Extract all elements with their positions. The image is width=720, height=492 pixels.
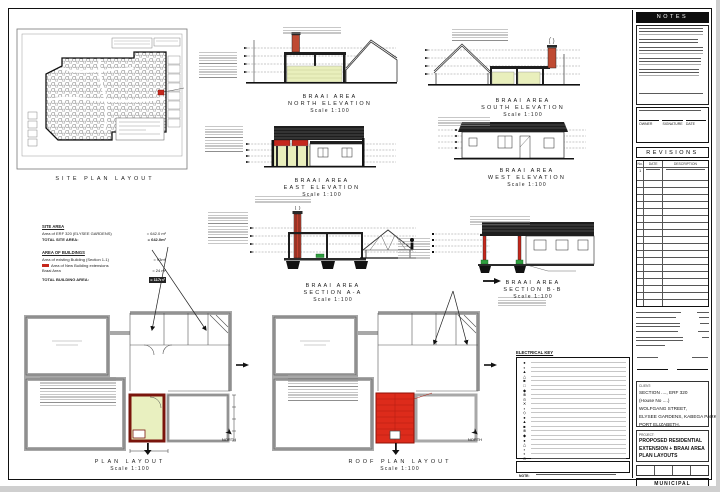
section-arrow [144, 450, 152, 455]
municipal-approval: MUNICIPAL APPROVAL [636, 478, 709, 487]
signature-box: OWNER SIGNATURE DATE [636, 107, 709, 143]
revision-row-empty [637, 187, 708, 194]
revisions-empty-rows [637, 174, 708, 306]
address-line: PORT ELIZABETH. [639, 421, 706, 429]
address-line: WOLFGANG STREET, [639, 405, 706, 413]
electrical-item-text [531, 371, 626, 373]
project-label: PROJECT: [639, 433, 706, 437]
electrical-item-text [531, 444, 626, 446]
revision-row-empty [637, 299, 708, 306]
revision-row-empty [637, 264, 708, 271]
chimney [292, 35, 300, 52]
electrical-item-text [531, 417, 626, 419]
roof-plan-caption: ROOF PLAN LAYOUT Scale 1:100 [320, 459, 480, 473]
section-bb-drawing [430, 218, 600, 280]
notes-header: NOTES [636, 12, 709, 23]
direction-arrow [491, 363, 497, 368]
notes-text [639, 47, 703, 55]
revision-row-1: 1 [637, 167, 708, 174]
electrical-key-note: NOTE: [516, 461, 630, 473]
area-schedule: SITE AREA Area of ERF 320 (ELYSEE GARDEN… [42, 221, 166, 283]
revision-row-empty [637, 194, 708, 201]
braai-unit [133, 430, 145, 438]
designer-info [636, 356, 709, 378]
electrical-key: ELECTRICAL KEY ●◐▲△■□◆⊗⊙✕▪◇●▲■⊗◆●△▪◐⊙ NO… [516, 350, 630, 473]
north-elevation-drawing [240, 30, 402, 92]
notes-text [639, 28, 703, 36]
green-footing [516, 260, 523, 264]
green-footing [481, 260, 488, 264]
electrical-item-text [531, 398, 626, 400]
red-beam [292, 140, 308, 146]
electrical-item-text [531, 435, 626, 437]
electrical-item-text [531, 439, 626, 441]
annotation-text [438, 117, 490, 126]
buildings-heading: AREA OF BUILDINGS [42, 250, 166, 255]
annotation-text [288, 375, 358, 401]
revision-row-empty [637, 285, 708, 292]
electrical-item-text [531, 412, 626, 414]
section-arrow [392, 450, 400, 455]
revision-row-empty [637, 201, 708, 208]
annotation-text [498, 297, 546, 307]
notes-text [639, 69, 699, 77]
north-arrow-plan: ➤ NORTH [216, 428, 242, 442]
red-beam [274, 140, 290, 146]
signature-note [639, 110, 701, 113]
notes-text [639, 93, 703, 96]
electrical-item-text [531, 426, 626, 428]
revision-row-empty [637, 271, 708, 278]
red-post [483, 236, 486, 260]
electrical-item-text [531, 362, 626, 364]
annotation-text [470, 216, 530, 226]
annotation-text [398, 238, 430, 260]
north-elevation-caption: BRAAI AREA NORTH ELEVATION Scale 1:100 [265, 94, 395, 115]
electrical-item-text [531, 367, 626, 369]
title-panel: NOTES OWNER SIGNATURE DATE REVISIONS No.… [632, 10, 711, 478]
electrical-item-text [531, 458, 626, 460]
revision-row-empty [637, 236, 708, 243]
revision-row-empty [637, 257, 708, 264]
owner-signature-field: OWNER [639, 120, 659, 126]
north-arrow-roof: ➤ NORTH [462, 428, 488, 442]
section-aa-drawing [250, 206, 422, 280]
annotation-text [208, 212, 248, 244]
red-post [518, 236, 521, 260]
revision-row-empty [637, 250, 708, 257]
electrical-item-text [531, 430, 626, 432]
info-field [637, 364, 668, 370]
annotation-text [452, 29, 508, 41]
electrical-item-text [531, 389, 626, 391]
door [520, 136, 530, 158]
electrical-item-text [531, 421, 626, 423]
note-text [536, 474, 616, 477]
electrical-symbol-icon: ⊙ [520, 457, 529, 461]
notes-text [639, 39, 698, 44]
section-aa-caption: BRAAI AREA SECTION A-A Scale 1:100 [268, 283, 398, 304]
electrical-item-text [531, 376, 626, 378]
electrical-item-text [531, 385, 626, 387]
electrical-item-text [531, 408, 626, 410]
chimney [548, 48, 556, 68]
info-field [677, 364, 708, 370]
address-line: (House No ....) [639, 397, 706, 405]
coverage-calculations [636, 311, 709, 353]
red-area-swatch [42, 264, 49, 268]
annotation-text [283, 27, 341, 35]
scale-drawn-date-row [636, 465, 709, 476]
electrical-item-text [531, 403, 626, 405]
plan-layout-caption: PLAN LAYOUT Scale 1:100 [55, 459, 205, 473]
annotation-text [40, 377, 116, 407]
west-elevation-caption: BRAAI AREA WEST ELEVATION Scale 1:100 [462, 168, 592, 189]
revision-row-empty [637, 174, 708, 180]
revision-row-empty [637, 278, 708, 285]
east-elevation-drawing [246, 116, 403, 176]
revision-row-empty [637, 292, 708, 299]
project-title-line: PROPOSED RESIDENTIAL [639, 438, 706, 446]
annotation-text [199, 52, 237, 78]
roof-vent [390, 431, 400, 439]
site-area-heading: SITE AREA [42, 224, 166, 229]
direction-arrow [243, 363, 249, 368]
electrical-item-text [531, 394, 626, 396]
electrical-item-text [531, 380, 626, 382]
notes-box [636, 25, 709, 105]
revision-row-empty [637, 180, 708, 187]
annotation-text [255, 196, 311, 204]
project-block: PROJECT: PROPOSED RESIDENTIAL EXTENSION … [636, 430, 709, 462]
address-line: SECTION ...., ERF 320 [639, 389, 706, 397]
site-plan-caption: SITE PLAN LAYOUT [40, 176, 170, 183]
chimney-section [294, 214, 301, 258]
revision-row-empty [637, 222, 708, 229]
revisions-table: No. DATE DESCRIPTION 1 [636, 160, 709, 307]
annotation-text [205, 126, 243, 152]
electrical-key-rows: ●◐▲△■□◆⊗⊙✕▪◇●▲■⊗◆●△▪◐⊙ [516, 357, 630, 459]
drawing-sheet: SITE PLAN LAYOUT BRAAI AREA NORTH ELEVAT… [0, 0, 716, 486]
revisions-header: REVISIONS [636, 147, 709, 158]
revision-row-empty [637, 229, 708, 236]
revision-row-empty [637, 208, 708, 215]
project-title-line: PLAN LAYOUTS [639, 453, 706, 461]
address-line: ELYSEE GARDENS, KABEGA PARK, [639, 413, 706, 421]
site-plan-drawing [16, 28, 188, 170]
project-title-line: EXTENSION + BRAAI AREA [639, 446, 706, 454]
electrical-key-title: ELECTRICAL KEY [516, 350, 630, 355]
client-block: CLIENT: SECTION ...., ERF 320 (House No … [636, 381, 709, 427]
electrical-item-text [531, 453, 626, 455]
signature-field: SIGNATURE [662, 120, 682, 126]
notes-text [639, 58, 701, 66]
revision-row-empty [637, 215, 708, 222]
green-marker [316, 254, 324, 258]
date-field: DATE [686, 120, 706, 126]
highlighted-erf-lot [158, 90, 164, 95]
revisions-columns-row: No. DATE DESCRIPTION [637, 161, 708, 167]
revision-row-empty [637, 243, 708, 250]
electrical-item-text [531, 448, 626, 450]
client-label: CLIENT: [639, 384, 706, 388]
